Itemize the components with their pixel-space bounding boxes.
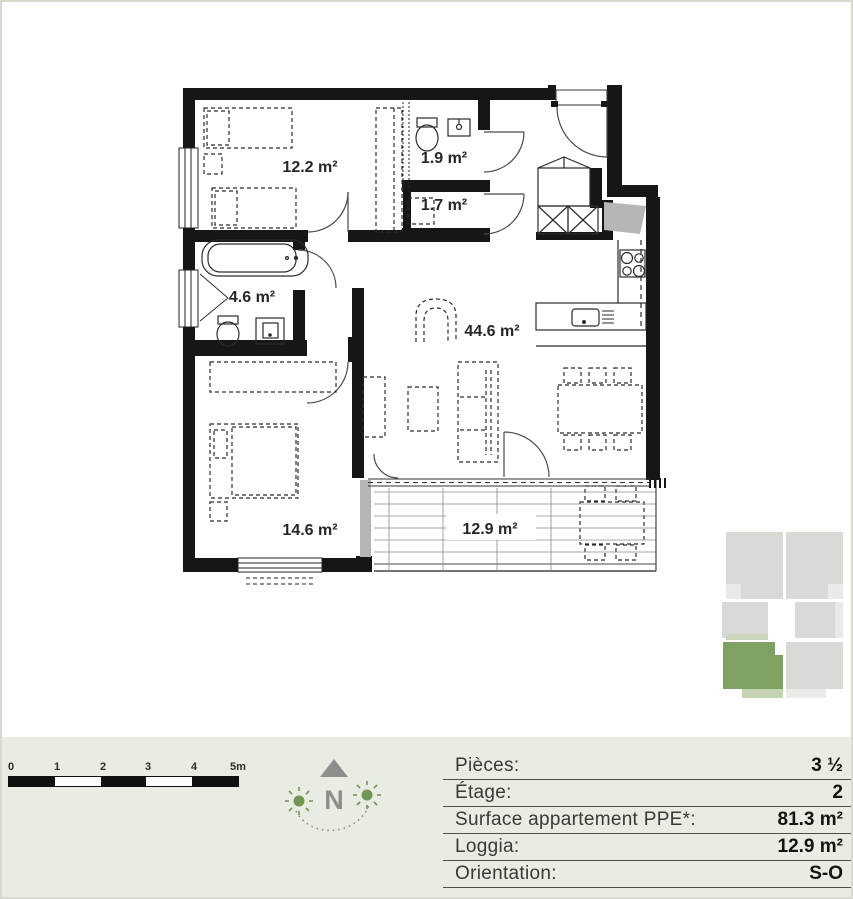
info-row-loggia: Loggia: 12.9 m² bbox=[443, 834, 851, 861]
info-value: 3 ½ bbox=[811, 755, 843, 777]
toilet-wc bbox=[416, 118, 438, 151]
bed-single-2 bbox=[212, 188, 296, 228]
north-arrow-icon bbox=[320, 759, 348, 777]
info-row-orientation: Orientation: S-O bbox=[443, 861, 851, 888]
floor-plan: 12.2 m² 1.9 m² 1.7 m² 4.6 m² 44.6 m² 14.… bbox=[0, 0, 853, 737]
coffee-table bbox=[408, 387, 438, 431]
dining-table bbox=[558, 368, 642, 450]
room-area-label-loggia: 12.9 m² bbox=[462, 521, 517, 538]
room-area-label-wc: 1.9 m² bbox=[421, 150, 467, 167]
room-area-label-bedroom1: 12.2 m² bbox=[282, 159, 337, 176]
sun-icon bbox=[353, 781, 381, 809]
room-area-label-living: 44.6 m² bbox=[464, 323, 519, 340]
bed-double bbox=[210, 424, 298, 498]
entrance-door bbox=[551, 90, 608, 157]
room-area-label-bathroom: 4.6 m² bbox=[229, 289, 275, 306]
scale-tick: 2 bbox=[100, 761, 106, 773]
info-label: Orientation: bbox=[455, 863, 557, 885]
building-position-map bbox=[722, 532, 843, 698]
scale-tick: 3 bbox=[145, 761, 151, 773]
loggia-table-chairs bbox=[580, 486, 644, 560]
north-compass: N bbox=[280, 751, 388, 851]
bed-single-1 bbox=[204, 108, 292, 148]
room-area-label-bedroom2: 14.6 m² bbox=[282, 522, 337, 539]
kitchen-counter bbox=[536, 240, 646, 346]
scale-tick: 4 bbox=[191, 761, 197, 773]
stair-shadow bbox=[604, 202, 646, 234]
wardrobe-bedroom1 bbox=[376, 108, 402, 232]
window-bedroom1 bbox=[179, 148, 198, 228]
scale-bar: 0 1 2 3 4 5m bbox=[8, 761, 240, 787]
floorplan-page: 12.2 m² 1.9 m² 1.7 m² 4.6 m² 44.6 m² 14.… bbox=[0, 0, 853, 899]
highlighted-unit bbox=[723, 642, 783, 689]
info-row-pieces: Pièces: 3 ½ bbox=[443, 753, 851, 780]
wardrobe-bedroom2 bbox=[210, 362, 336, 392]
info-value: 12.9 m² bbox=[778, 836, 843, 858]
sink-wc bbox=[448, 119, 470, 136]
duct-shaft bbox=[538, 206, 598, 234]
scale-ticks: 0 1 2 3 4 5m bbox=[8, 761, 240, 774]
info-row-etage: Étage: 2 bbox=[443, 780, 851, 807]
info-value: 2 bbox=[832, 782, 843, 804]
window-bedroom2 bbox=[238, 558, 322, 572]
info-label: Pièces: bbox=[455, 755, 519, 777]
info-value: 81.3 m² bbox=[778, 809, 843, 831]
entry-closet bbox=[538, 157, 590, 206]
sun-icon bbox=[285, 787, 313, 815]
highlighted-unit-loggia bbox=[742, 689, 783, 698]
nightstand-2 bbox=[210, 502, 227, 521]
info-value: S-O bbox=[809, 863, 843, 885]
armchair bbox=[416, 299, 456, 342]
north-label: N bbox=[324, 785, 344, 815]
bathtub bbox=[202, 240, 308, 276]
scale-bar-segments bbox=[8, 776, 239, 787]
window-bathroom bbox=[179, 270, 198, 327]
scale-tick: 5m bbox=[230, 761, 246, 773]
window-tilt-symbol bbox=[200, 274, 228, 321]
loggia-glazing bbox=[368, 479, 650, 486]
sideboard bbox=[363, 377, 385, 437]
scale-tick: 1 bbox=[54, 761, 60, 773]
info-table: Pièces: 3 ½ Étage: 2 Surface appartement… bbox=[443, 753, 851, 888]
scale-tick: 0 bbox=[8, 761, 14, 773]
info-label: Étage: bbox=[455, 782, 512, 804]
nightstand-1 bbox=[204, 154, 222, 174]
info-row-surface: Surface appartement PPE*: 81.3 m² bbox=[443, 807, 851, 834]
info-label: Loggia: bbox=[455, 836, 519, 858]
legend-band: 0 1 2 3 4 5m N bbox=[2, 737, 851, 897]
room-area-label-reduit: 1.7 m² bbox=[421, 197, 467, 214]
sofa bbox=[458, 362, 498, 462]
info-label: Surface appartement PPE*: bbox=[455, 809, 696, 831]
